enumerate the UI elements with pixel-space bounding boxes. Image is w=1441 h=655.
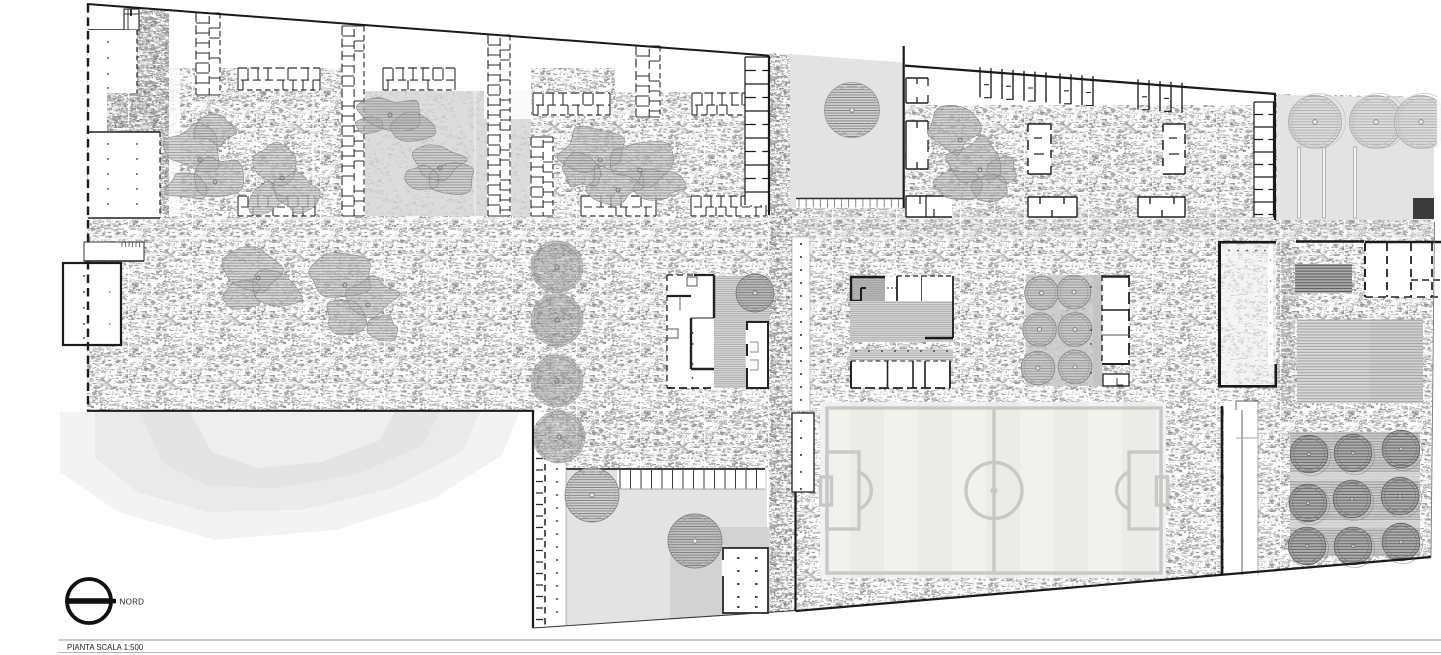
svg-text:PIANTA SCALA 1:500: PIANTA SCALA 1:500 bbox=[67, 643, 144, 652]
svg-text:NORD: NORD bbox=[120, 598, 145, 607]
